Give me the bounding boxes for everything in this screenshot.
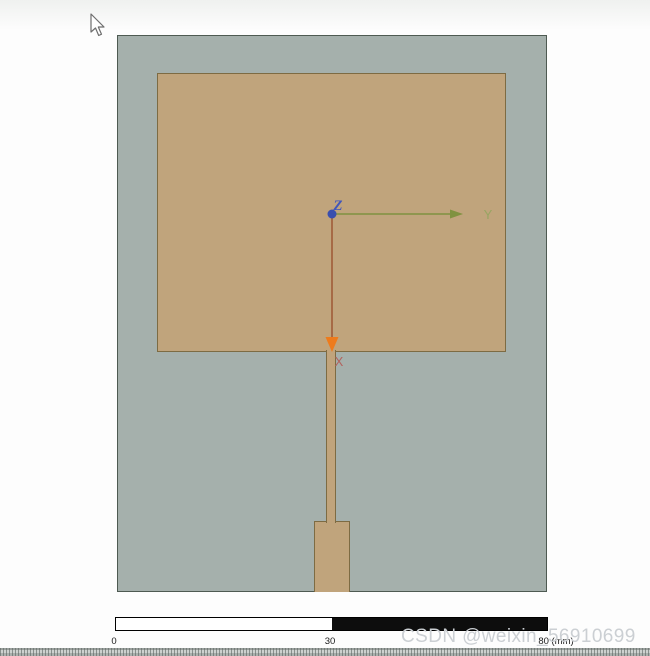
mouse-cursor-icon (90, 13, 108, 39)
scale-tick-mid: 30 (325, 636, 336, 647)
watermark-text: CSDN @weixin_56910699 (401, 626, 636, 648)
window-edge-strip (0, 648, 650, 656)
patch-object[interactable] (157, 73, 506, 352)
scale-tick-start: 0 (111, 636, 116, 647)
feed-pad-object[interactable] (314, 521, 350, 592)
feed-line-object[interactable] (326, 350, 336, 523)
modeler-viewport[interactable]: Y X Z 0 30 80 (mm) CSDN @weixin_56910699 (0, 0, 650, 656)
scale-bar-white-segment (116, 618, 332, 630)
